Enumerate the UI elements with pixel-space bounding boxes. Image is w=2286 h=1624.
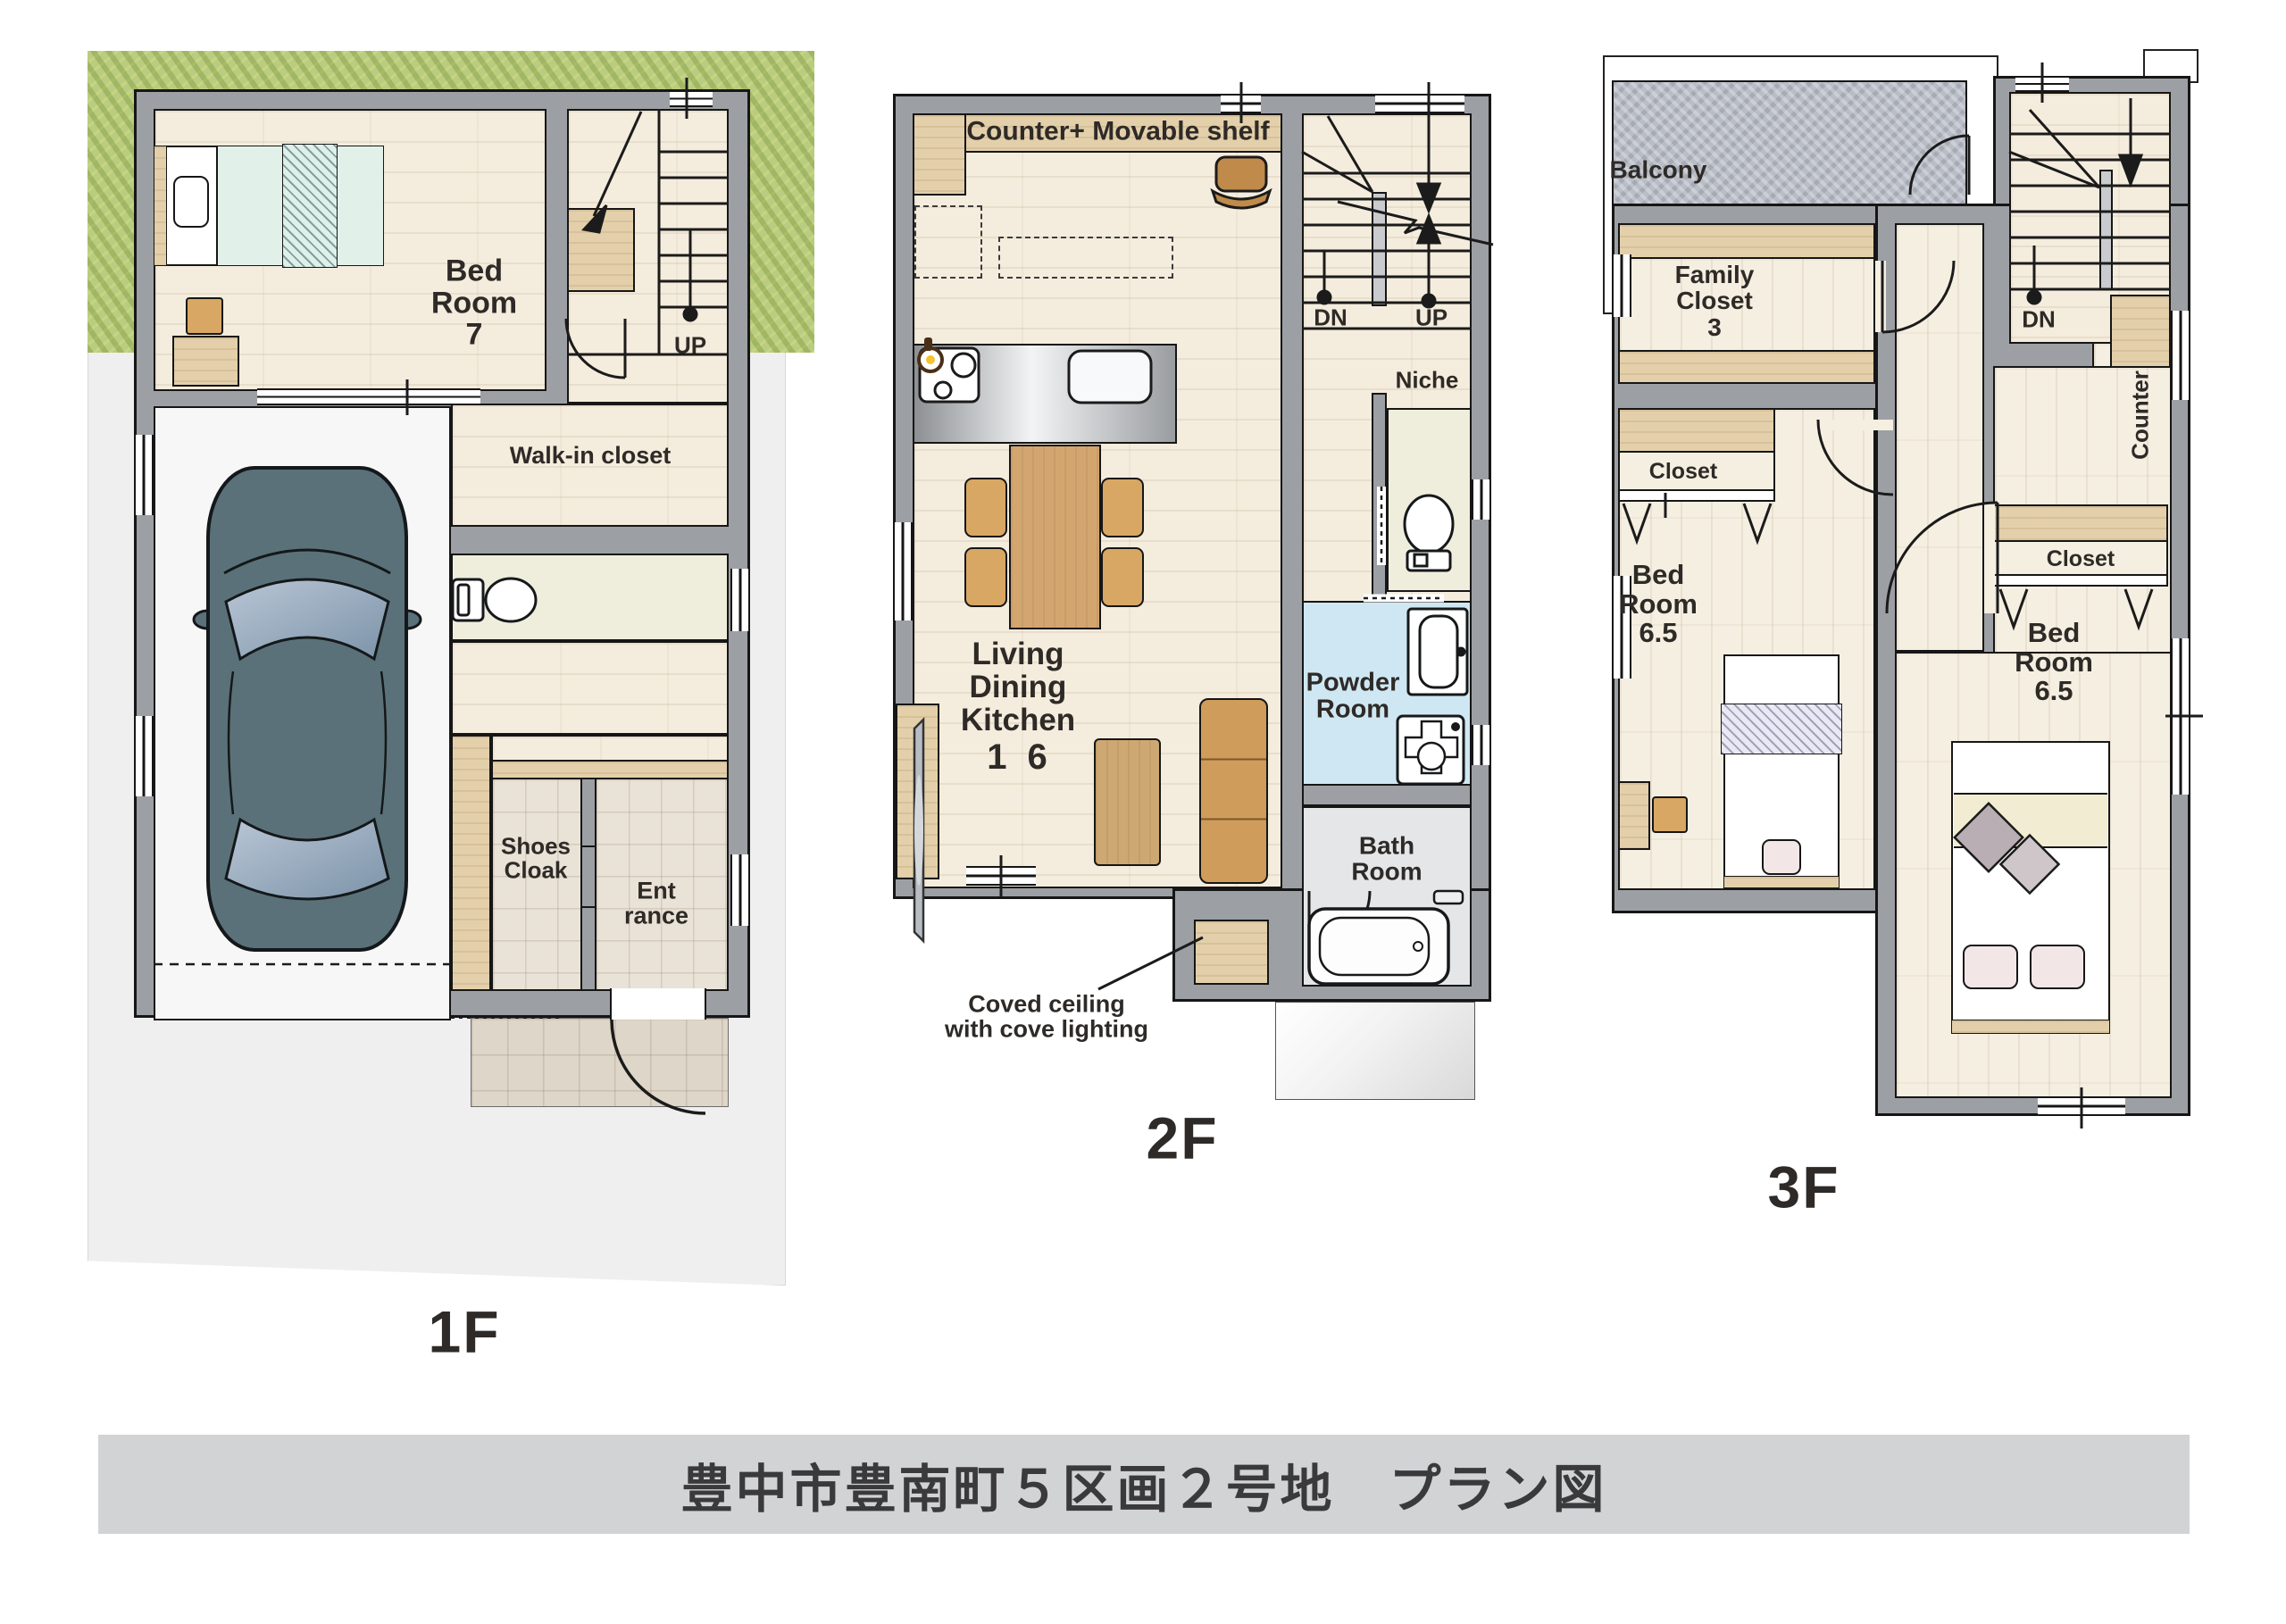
window bbox=[1472, 479, 1491, 520]
double-bed-3f bbox=[1951, 741, 2110, 1034]
label-balcony: Balcony bbox=[1610, 156, 1707, 182]
label-bedroom-right-3f: Bed Room 6.5 bbox=[2015, 619, 2093, 706]
bed-pillow bbox=[1762, 839, 1801, 875]
floorplan-sheet: Bed Room 7 UP Walk-in closet Shoes Cloak… bbox=[0, 0, 2286, 1624]
understair-storage bbox=[567, 208, 635, 292]
closet-right-door bbox=[1991, 574, 2168, 587]
window bbox=[134, 716, 154, 796]
low-table bbox=[1094, 738, 1161, 866]
family-closet-shelf-top bbox=[1618, 223, 1875, 259]
label-closet-left: Closet bbox=[1649, 460, 1717, 483]
bed-headboard bbox=[154, 146, 167, 266]
label-ldk-size: 1 6 bbox=[987, 738, 1053, 776]
entrance-porch bbox=[471, 1018, 729, 1107]
label-bedroom-left-3f: Bed Room 6.5 bbox=[1619, 561, 1698, 648]
dining-chair bbox=[964, 478, 1007, 537]
window bbox=[1221, 94, 1261, 113]
label-dn-3f: DN bbox=[2022, 307, 2056, 331]
label-ldk: Living Dining Kitchen bbox=[961, 638, 1075, 737]
closet-left-shelf bbox=[1618, 408, 1775, 453]
title-bar: 豊中市豊南町５区画２号地 プラン図 bbox=[98, 1435, 2190, 1534]
window bbox=[1375, 94, 1464, 113]
bed-foot-board bbox=[1951, 1020, 2110, 1034]
window bbox=[730, 854, 750, 926]
window bbox=[2171, 638, 2190, 795]
floor-plan-1f: Bed Room 7 UP Walk-in closet Shoes Cloak… bbox=[88, 51, 816, 1435]
cupboard-space bbox=[998, 237, 1173, 279]
bed-blanket-stripe bbox=[282, 144, 338, 268]
bed-pillow bbox=[2030, 945, 2085, 989]
label-counter-shelf: Counter+ Movable shelf bbox=[966, 117, 1269, 146]
window bbox=[1472, 725, 1491, 765]
stair-rail bbox=[1372, 192, 1387, 306]
dining-chair bbox=[1101, 547, 1144, 607]
window bbox=[730, 569, 750, 631]
stair-rail bbox=[2099, 170, 2113, 290]
label-floor-3f: 3F bbox=[1767, 1156, 1840, 1218]
kitchen-counter bbox=[913, 344, 1177, 444]
hallway-1f bbox=[451, 641, 729, 735]
refrigerator-space bbox=[914, 205, 982, 279]
label-family-closet: Family Closet 3 bbox=[1675, 262, 1755, 340]
label-up-2f: UP bbox=[1415, 305, 1448, 329]
label-walkin-closet: Walk-in closet bbox=[510, 443, 672, 468]
label-closet-right: Closet bbox=[2047, 547, 2115, 570]
floor-plan-3f: Balcony Family Closet 3 Closet Bed Room … bbox=[1603, 36, 2237, 1232]
door-opening bbox=[1875, 261, 1886, 332]
desk-1f bbox=[172, 336, 239, 387]
chair-1f bbox=[186, 297, 223, 335]
dining-chair bbox=[1101, 478, 1144, 537]
label-floor-1f: 1F bbox=[428, 1301, 500, 1362]
room-toilet-2f bbox=[1387, 408, 1472, 592]
family-closet-shelf-bottom bbox=[1618, 350, 1875, 384]
wall-stub bbox=[580, 778, 597, 847]
room-toilet-1f bbox=[451, 554, 729, 641]
entrance-step-band bbox=[491, 760, 729, 779]
label-entrance: Ent rance bbox=[624, 879, 688, 929]
window bbox=[670, 90, 713, 107]
chair-3f bbox=[1652, 796, 1688, 833]
door-opening bbox=[1818, 420, 1893, 430]
plan-title: 豊中市豊南町５区画２号地 プラン図 bbox=[680, 1447, 1606, 1522]
entrance-upper-floor bbox=[491, 735, 729, 762]
bed-foot-board bbox=[1723, 876, 1840, 888]
closet-right-shelf bbox=[1991, 504, 2168, 542]
roof-below bbox=[1275, 1002, 1475, 1100]
label-dn-2f: DN bbox=[1314, 305, 1347, 329]
window bbox=[257, 388, 480, 405]
desk-3f bbox=[1618, 781, 1650, 850]
tv-board bbox=[896, 704, 939, 879]
bed-head-band bbox=[1954, 793, 2107, 848]
shoes-shelf bbox=[451, 735, 491, 991]
window bbox=[2015, 76, 2069, 92]
bed-pillow bbox=[1963, 945, 2018, 989]
label-powder-room: Powder Room bbox=[1306, 670, 1400, 724]
label-shoes-cloak: Shoes Cloak bbox=[501, 835, 571, 884]
window bbox=[2038, 1096, 2125, 1116]
dining-table bbox=[1009, 445, 1101, 629]
label-counter-3f: Counter bbox=[2128, 371, 2152, 460]
label-up-1f: UP bbox=[674, 333, 706, 357]
bed-pillow bbox=[173, 176, 209, 228]
garage-1f bbox=[154, 406, 451, 1020]
label-bath-room: Bath Room bbox=[1351, 833, 1422, 886]
window bbox=[1612, 254, 1631, 317]
wall-powder-bath bbox=[1302, 784, 1472, 806]
floor-plan-2f: Counter+ Movable shelf DN UP Niche Livin… bbox=[893, 80, 1518, 1205]
closet-left-door bbox=[1618, 489, 1775, 502]
hallway-3f bbox=[1895, 223, 1984, 652]
tall-cabinet bbox=[913, 113, 966, 196]
single-bed-stripe bbox=[1721, 704, 1842, 754]
window bbox=[966, 866, 1036, 886]
room-shoes-cloak bbox=[491, 778, 582, 991]
window bbox=[134, 435, 154, 515]
label-bedroom-1f: Bed Room 7 bbox=[431, 255, 517, 351]
door-opening bbox=[1984, 503, 1995, 613]
wall-stub bbox=[580, 906, 597, 991]
bath-entry-floor bbox=[1194, 920, 1269, 985]
window bbox=[2171, 311, 2190, 400]
label-niche: Niche bbox=[1396, 368, 1459, 392]
niche-wall bbox=[1372, 393, 1387, 601]
balcony bbox=[1612, 80, 1967, 205]
sofa bbox=[1199, 698, 1268, 884]
window bbox=[893, 522, 913, 620]
dining-chair bbox=[964, 547, 1007, 607]
label-coved-ceiling-note: Coved ceiling with cove lighting bbox=[945, 992, 1148, 1043]
label-floor-2f: 2F bbox=[1146, 1107, 1218, 1169]
entrance-door-opening bbox=[610, 988, 706, 1020]
